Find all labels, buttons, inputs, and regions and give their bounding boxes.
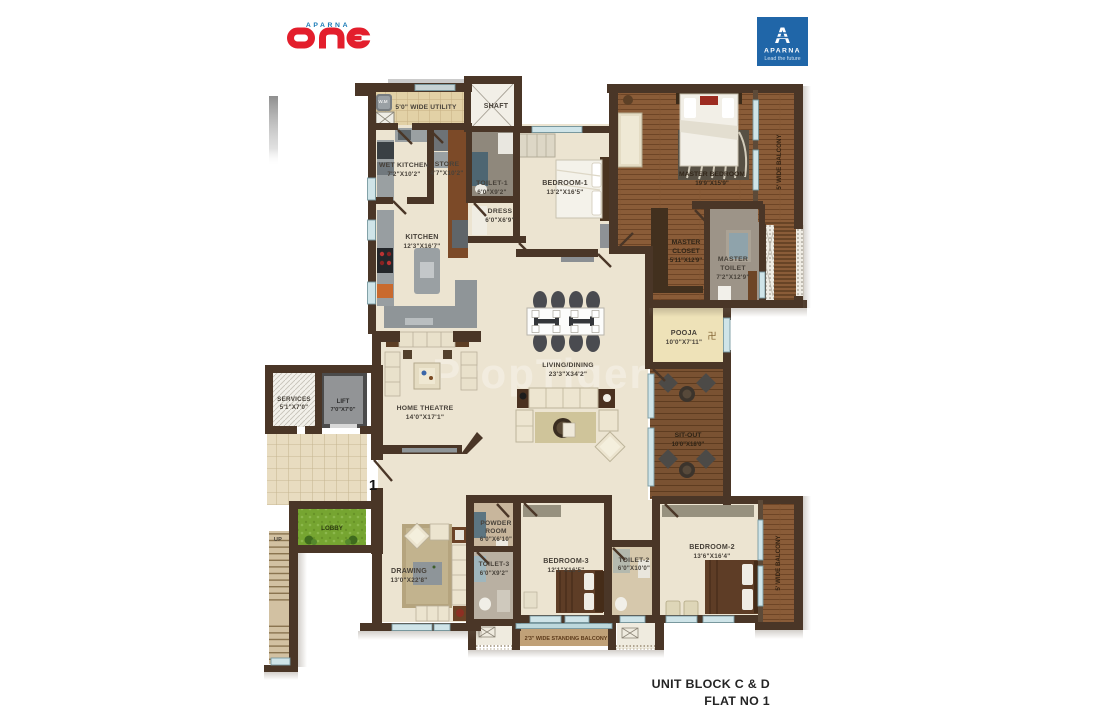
svg-text:13'2"X16'5": 13'2"X16'5": [547, 189, 584, 196]
svg-text:BEDROOM-1: BEDROOM-1: [542, 179, 588, 187]
svg-text:UNIT BLOCK C & D: UNIT BLOCK C & D: [652, 677, 770, 691]
svg-text:7'2"X10'2": 7'2"X10'2": [387, 171, 420, 178]
svg-text:14'0"X17'1": 14'0"X17'1": [406, 414, 445, 421]
svg-text:6'0"X6'10": 6'0"X6'10": [480, 536, 512, 543]
svg-text:4'7"X10'2": 4'7"X10'2": [430, 170, 463, 177]
svg-text:SHAFT: SHAFT: [484, 103, 509, 110]
svg-text:6'0"X6'9": 6'0"X6'9": [485, 217, 514, 224]
svg-text:SERVICES: SERVICES: [277, 396, 311, 403]
svg-text:BEDROOM-3: BEDROOM-3: [543, 557, 589, 565]
svg-text:TOILET-2: TOILET-2: [619, 557, 650, 564]
svg-text:6'0"X9'2": 6'0"X9'2": [477, 189, 506, 196]
svg-text:12'1"X16'5": 12'1"X16'5": [548, 567, 585, 574]
svg-text:10'0"X18'0": 10'0"X18'0": [672, 442, 705, 448]
svg-text:6'0"X10'0": 6'0"X10'0": [618, 565, 650, 572]
svg-text:5'0" WIDE UTILITY: 5'0" WIDE UTILITY: [395, 104, 457, 111]
svg-text:5' WIDE BALCONY: 5' WIDE BALCONY: [775, 535, 782, 591]
svg-text:A: A: [775, 23, 791, 48]
svg-text:WET KITCHEN: WET KITCHEN: [379, 162, 429, 169]
svg-text:13'6"X16'4": 13'6"X16'4": [694, 553, 731, 560]
svg-text:UP: UP: [274, 537, 282, 543]
svg-text:2'3" WIDE STANDING BALCONY: 2'3" WIDE STANDING BALCONY: [525, 636, 608, 642]
svg-text:BEDROOM-2: BEDROOM-2: [689, 543, 735, 551]
svg-text:5'11"X12'9": 5'11"X12'9": [670, 258, 702, 264]
svg-text:LIVING/DINING: LIVING/DINING: [542, 362, 594, 369]
svg-text:MASTER BEDROOM: MASTER BEDROOM: [679, 171, 745, 178]
svg-text:SIT-OUT: SIT-OUT: [675, 432, 703, 439]
svg-text:DRAWING: DRAWING: [391, 567, 427, 575]
svg-text:CLOSET: CLOSET: [672, 248, 700, 255]
svg-text:7'0"X7'0": 7'0"X7'0": [330, 407, 355, 413]
svg-text:7'2"X12'9": 7'2"X12'9": [716, 274, 749, 281]
svg-text:POWDER: POWDER: [480, 520, 511, 527]
svg-text:19'9"X15'9": 19'9"X15'9": [695, 180, 729, 187]
svg-text:LIFT: LIFT: [337, 399, 350, 405]
svg-text:TOILET-3: TOILET-3: [479, 561, 510, 568]
svg-text:APARNA: APARNA: [764, 48, 801, 55]
svg-text:5'1"X7'0": 5'1"X7'0": [280, 404, 309, 411]
svg-text:MASTER: MASTER: [718, 256, 748, 263]
svg-text:13'0"X22'8": 13'0"X22'8": [391, 577, 428, 584]
svg-text:12'3"X16'7": 12'3"X16'7": [404, 243, 441, 250]
svg-text:TOILET-1: TOILET-1: [476, 180, 508, 187]
svg-text:10'0"X7'11": 10'0"X7'11": [666, 339, 703, 346]
svg-text:MASTER: MASTER: [672, 239, 701, 246]
svg-text:1: 1: [369, 477, 377, 494]
svg-text:DRESS: DRESS: [488, 208, 513, 215]
svg-text:5' WIDE BALCONY: 5' WIDE BALCONY: [776, 134, 783, 190]
svg-text:TOILET: TOILET: [720, 265, 746, 272]
svg-text:W.M: W.M: [378, 99, 387, 104]
svg-text:Lead the future: Lead the future: [764, 56, 800, 62]
svg-text:LOBBY: LOBBY: [321, 525, 344, 532]
svg-text:卍: 卍: [707, 331, 716, 341]
svg-text:6'0"X9'2": 6'0"X9'2": [480, 570, 509, 577]
svg-text:KITCHEN: KITCHEN: [405, 233, 438, 241]
svg-text:ROOM: ROOM: [485, 528, 507, 535]
svg-text:POOJA: POOJA: [671, 328, 697, 337]
svg-text:STORE: STORE: [435, 161, 460, 168]
svg-text:HOME THEATRE: HOME THEATRE: [397, 405, 454, 412]
svg-text:FLAT NO 1: FLAT NO 1: [704, 694, 770, 708]
svg-text:23'3"X34'2": 23'3"X34'2": [549, 371, 588, 378]
